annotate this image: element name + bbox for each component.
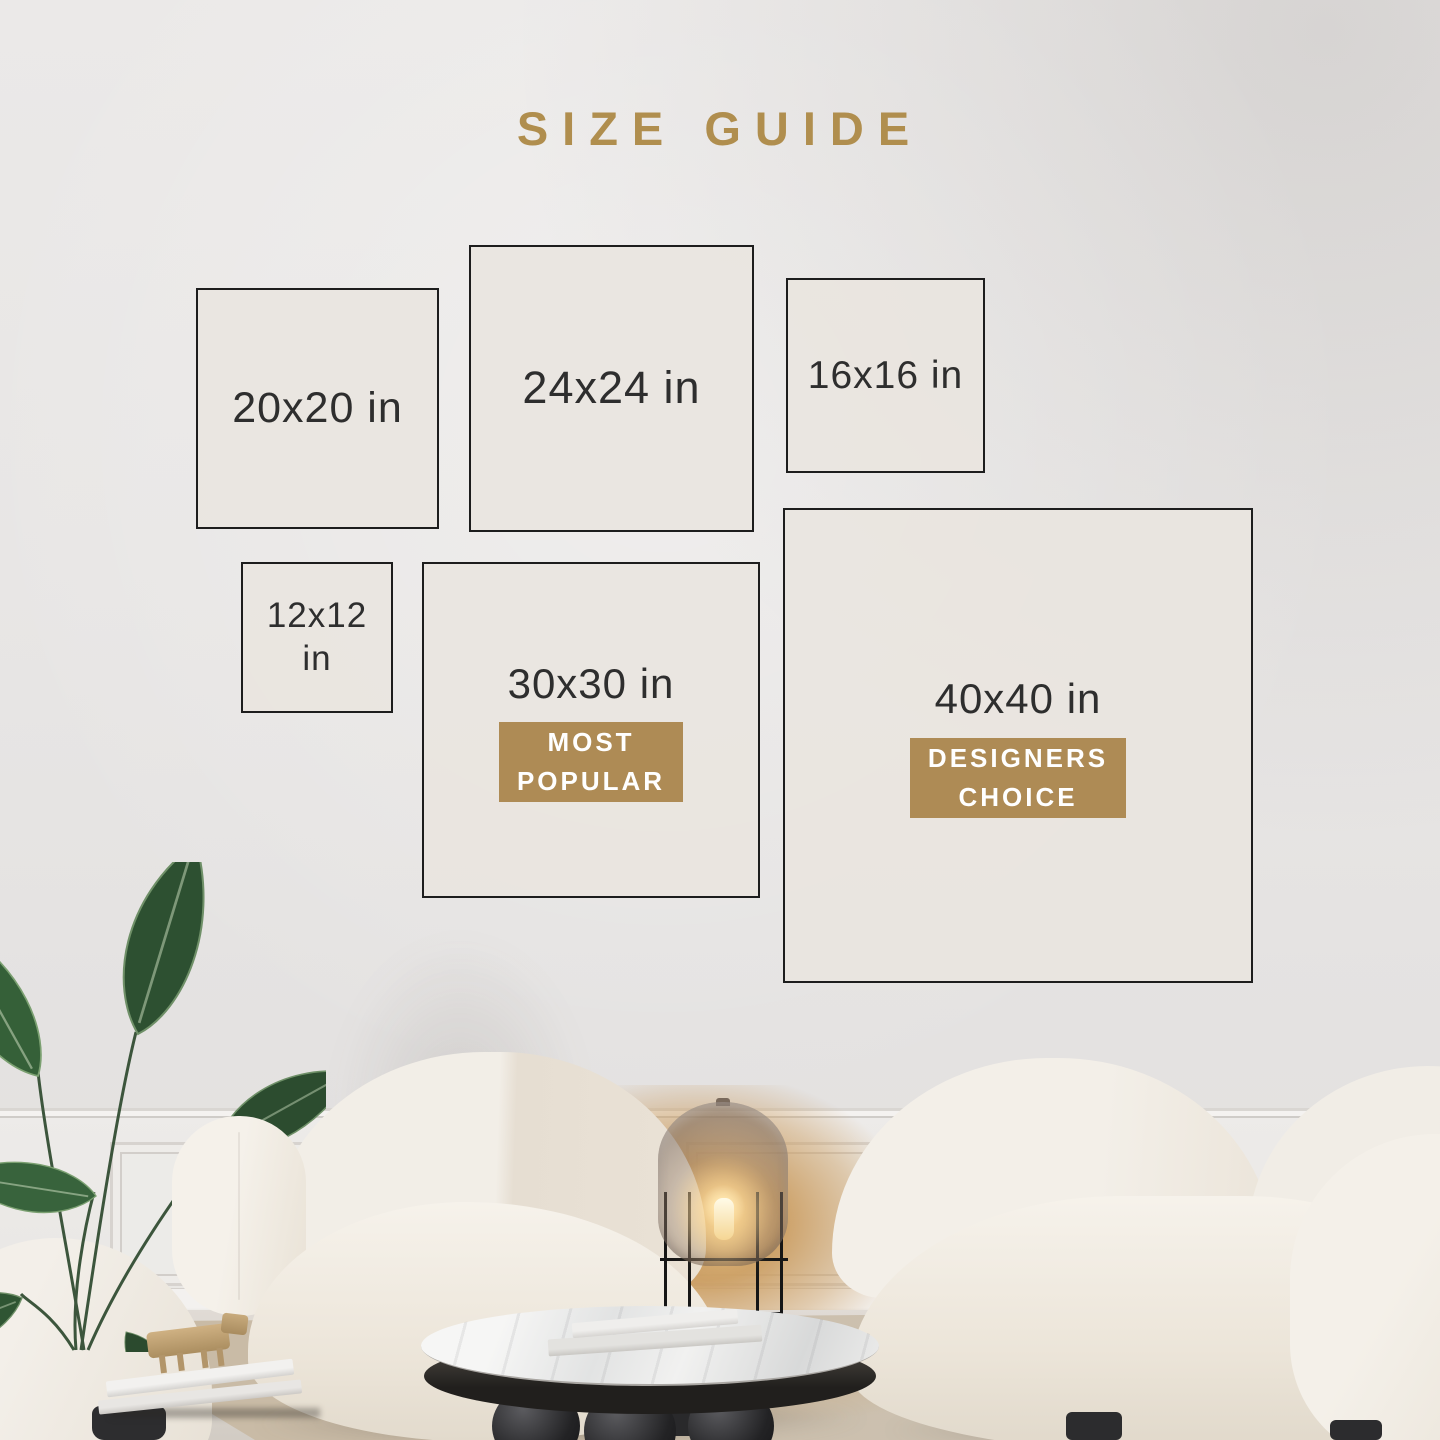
figurine-head — [220, 1312, 248, 1335]
figurine-leg — [177, 1353, 185, 1372]
size-label: 12x12 in — [267, 595, 367, 680]
designers-choice-badge: DESIGNERS CHOICE — [910, 738, 1126, 818]
size-box-24x24: 24x24 in — [469, 245, 754, 532]
size-label: 40x40 in — [935, 673, 1102, 724]
page-title: SIZE GUIDE — [0, 101, 1440, 156]
size-box-20x20: 20x20 in — [196, 288, 439, 529]
figurine-leg — [159, 1355, 167, 1374]
figurine-leg — [201, 1350, 209, 1369]
size-label: 16x16 in — [808, 352, 963, 400]
size-label: 24x24 in — [522, 361, 700, 416]
size-label: 30x30 in — [508, 658, 675, 709]
floor-lamp-glass — [658, 1102, 788, 1266]
size-box-16x16: 16x16 in — [786, 278, 985, 473]
size-guide-image: SIZE GUIDE 20x20 in 24x24 in 16x16 in 12… — [0, 0, 1440, 1440]
size-box-40x40: 40x40 in DESIGNERS CHOICE — [783, 508, 1253, 983]
sofa-foot — [1330, 1420, 1382, 1440]
size-box-30x30: 30x30 in MOST POPULAR — [422, 562, 760, 898]
sofa-foot — [1066, 1412, 1122, 1440]
size-box-12x12: 12x12 in — [241, 562, 393, 713]
most-popular-badge: MOST POPULAR — [499, 722, 683, 802]
figurine-leg — [216, 1348, 224, 1367]
lamp-bulb — [714, 1198, 734, 1240]
size-label: 20x20 in — [232, 382, 403, 434]
